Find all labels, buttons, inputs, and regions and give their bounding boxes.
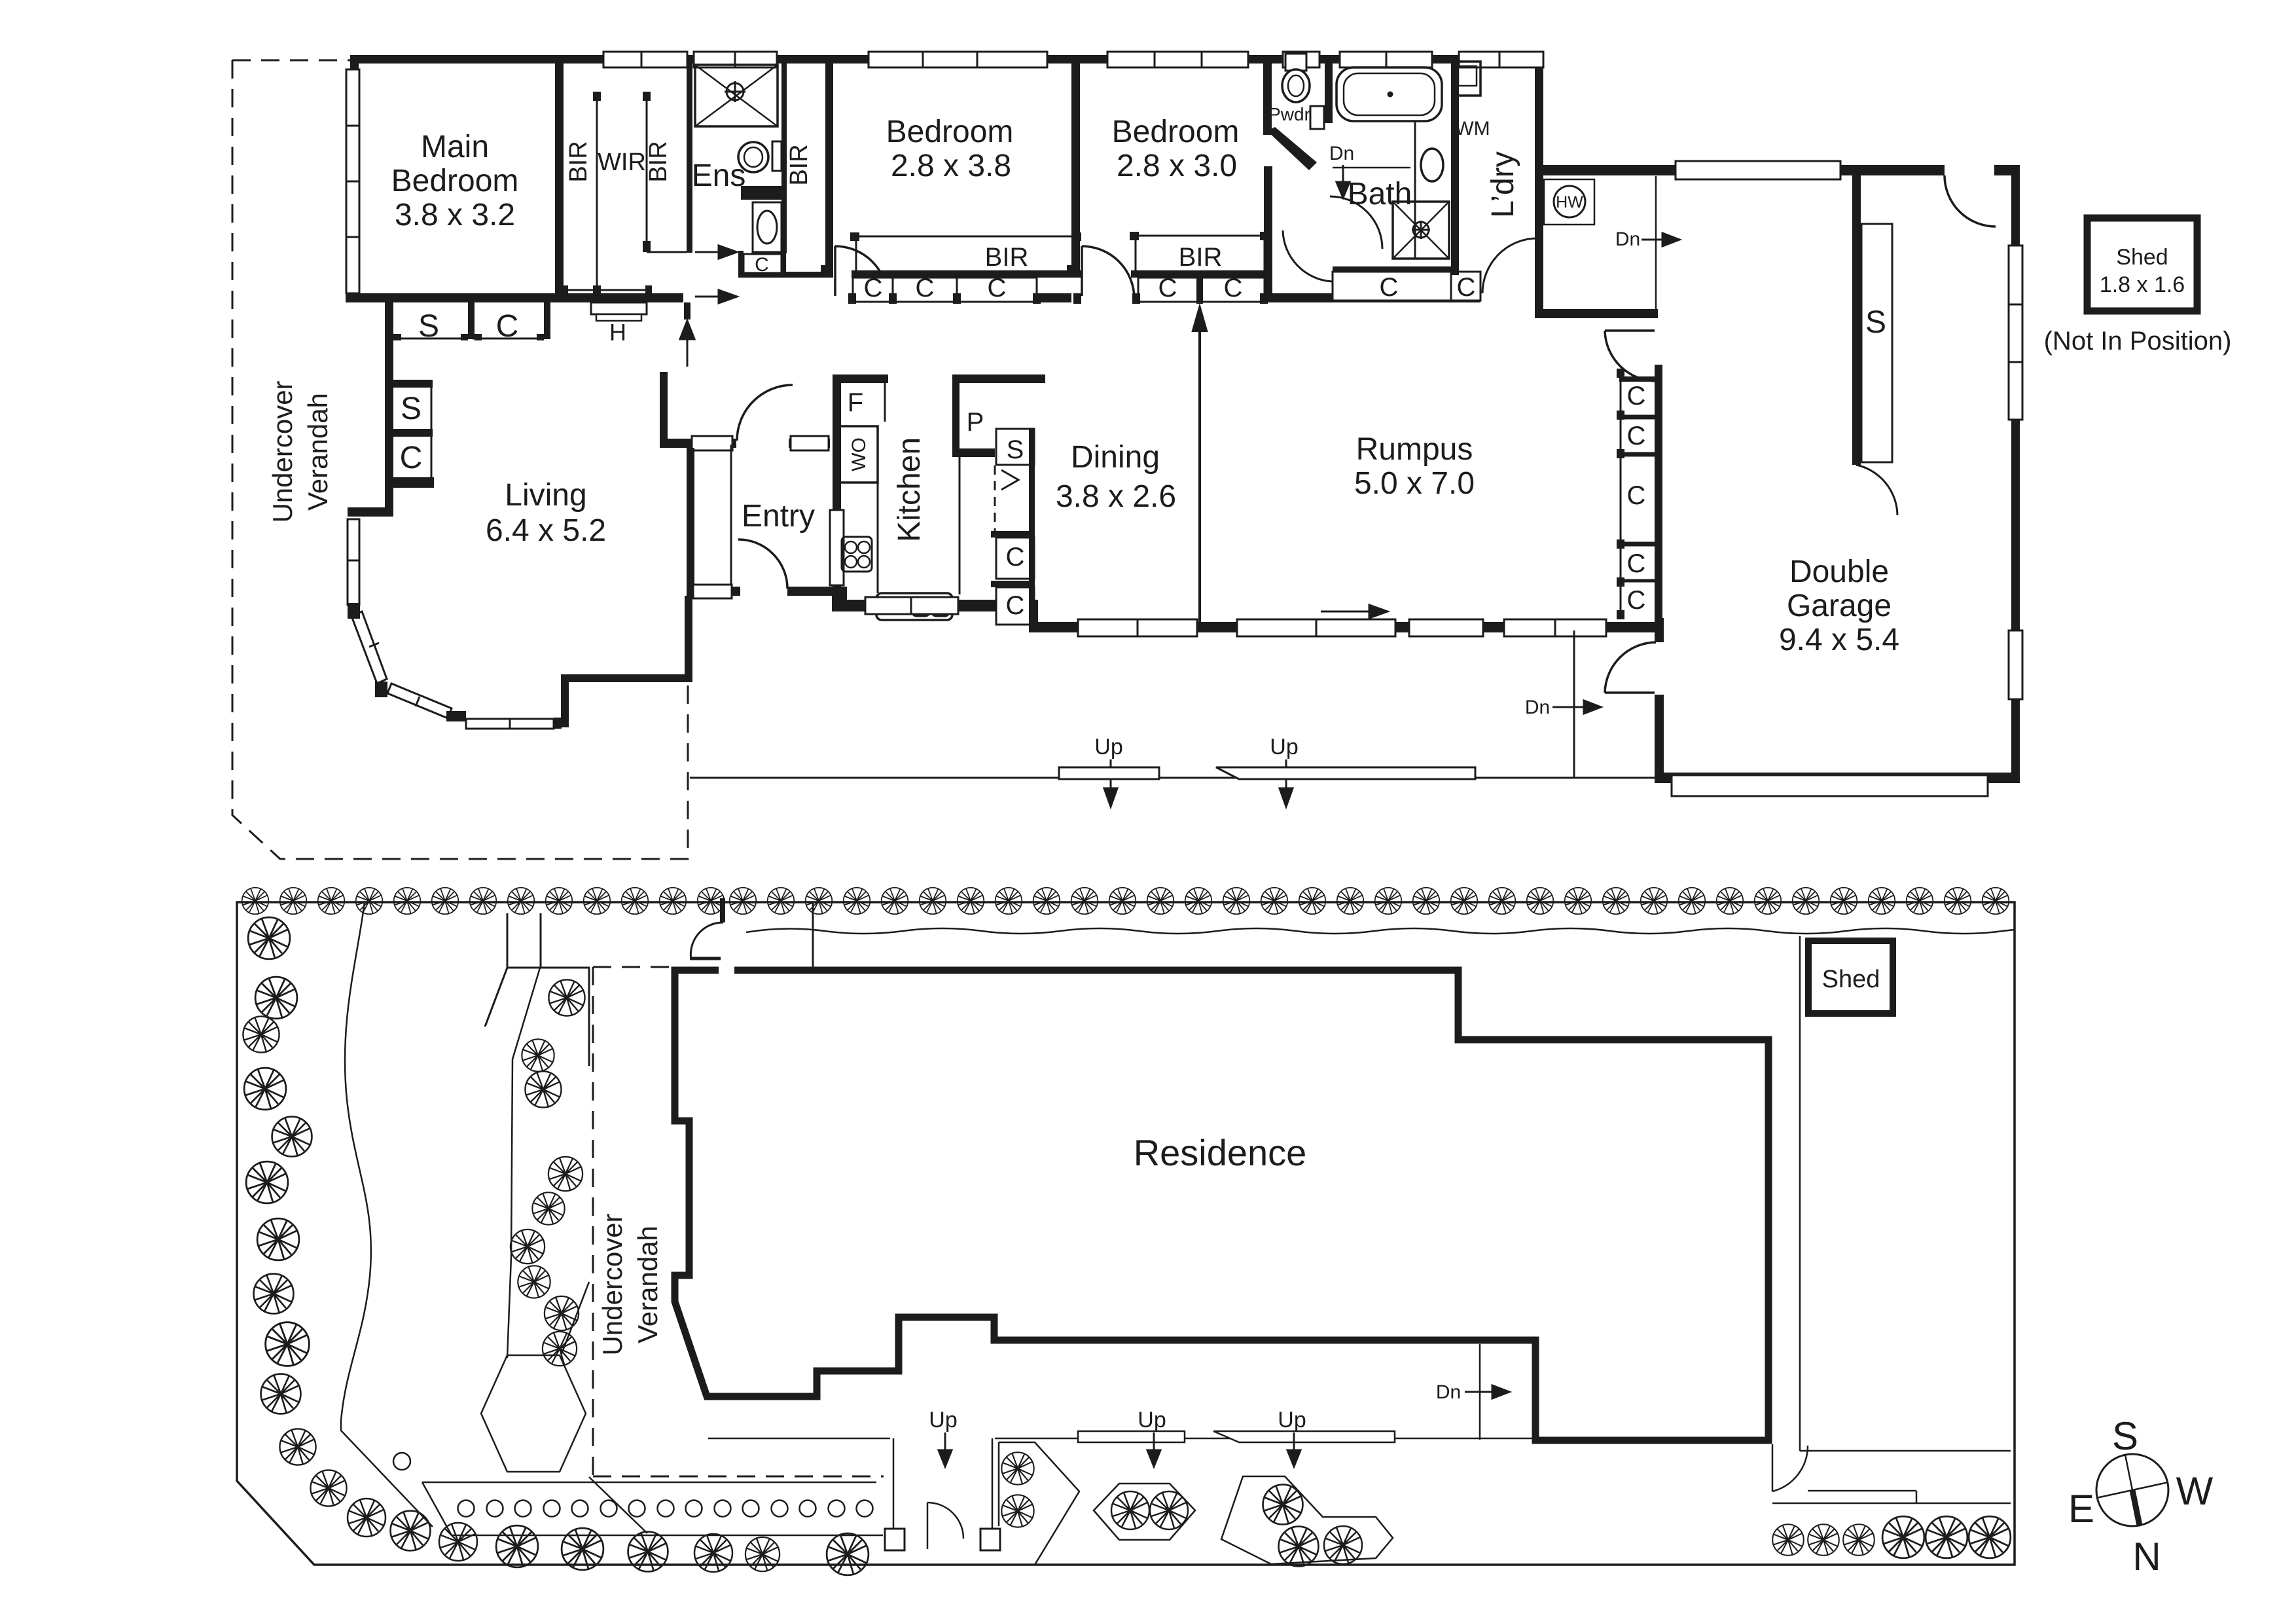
svg-text:C: C	[1627, 481, 1646, 510]
svg-text:BIR: BIR	[785, 144, 813, 185]
svg-text:C: C	[1158, 274, 1177, 302]
svg-text:Entry: Entry	[742, 499, 815, 534]
svg-text:F: F	[848, 388, 863, 417]
svg-text:WIR: WIR	[598, 149, 646, 176]
svg-text:C: C	[1006, 591, 1025, 620]
svg-text:Rumpus: Rumpus	[1356, 432, 1473, 467]
svg-text:Up: Up	[1094, 735, 1122, 759]
svg-text:Dn: Dn	[1436, 1381, 1461, 1403]
svg-text:Main: Main	[421, 130, 489, 164]
svg-text:Pwdr: Pwdr	[1268, 104, 1310, 124]
svg-text:C: C	[755, 254, 769, 276]
svg-text:Double: Double	[1789, 555, 1889, 589]
svg-text:Dn: Dn	[1525, 697, 1550, 718]
svg-text:C: C	[864, 274, 883, 302]
svg-text:WO: WO	[848, 437, 870, 471]
svg-text:S: S	[418, 309, 439, 344]
svg-text:C: C	[1380, 273, 1399, 302]
svg-text:C: C	[1627, 422, 1646, 450]
svg-text:P: P	[967, 408, 984, 437]
svg-text:Shed: Shed	[1822, 966, 1880, 993]
svg-text:C: C	[988, 274, 1007, 302]
svg-text:Shed: Shed	[2116, 245, 2168, 270]
svg-text:3.8 x 3.2: 3.8 x 3.2	[395, 198, 515, 232]
svg-text:H: H	[609, 319, 626, 346]
svg-text:Bedroom: Bedroom	[391, 164, 519, 198]
svg-text:S: S	[401, 392, 422, 426]
svg-text:C: C	[1627, 382, 1646, 410]
svg-text:BIR: BIR	[1179, 243, 1223, 272]
svg-text:W: W	[2176, 1469, 2214, 1513]
svg-text:C: C	[1006, 543, 1025, 572]
svg-text:BIR: BIR	[565, 141, 592, 182]
svg-text:Kitchen: Kitchen	[892, 437, 927, 542]
svg-text:Verandah: Verandah	[632, 1226, 663, 1343]
svg-text:BIR: BIR	[645, 141, 672, 182]
svg-text:1.8 x 1.6: 1.8 x 1.6	[2100, 272, 2185, 297]
svg-text:Up: Up	[1278, 1408, 1306, 1432]
svg-text:S: S	[1865, 305, 1886, 340]
svg-text:Undercover: Undercover	[267, 380, 298, 522]
svg-text:9.4 x 5.4: 9.4 x 5.4	[1779, 623, 1899, 657]
svg-text:N: N	[2132, 1535, 2161, 1578]
svg-text:Dining: Dining	[1071, 440, 1160, 475]
svg-text:C: C	[916, 274, 935, 302]
svg-text:Ens: Ens	[692, 158, 746, 193]
svg-text:BIR: BIR	[985, 243, 1029, 272]
svg-text:C: C	[496, 309, 519, 344]
svg-text:5.0 x 7.0: 5.0 x 7.0	[1354, 466, 1475, 501]
svg-text:2.8 x 3.0: 2.8 x 3.0	[1117, 149, 1237, 183]
svg-text:WM: WM	[1455, 118, 1490, 139]
svg-text:Garage: Garage	[1787, 589, 1892, 623]
svg-text:Up: Up	[1138, 1408, 1166, 1432]
svg-text:C: C	[1224, 274, 1243, 302]
svg-text:Dn: Dn	[1615, 228, 1640, 250]
svg-text:Undercover: Undercover	[597, 1213, 628, 1355]
svg-text:Up: Up	[929, 1408, 957, 1432]
svg-text:S: S	[1007, 435, 1024, 464]
svg-text:Up: Up	[1270, 735, 1298, 759]
svg-text:Bedroom: Bedroom	[886, 115, 1014, 149]
svg-text:C: C	[1627, 586, 1646, 615]
svg-text:E: E	[2068, 1487, 2094, 1531]
svg-text:Living: Living	[505, 478, 586, 513]
svg-text:S: S	[2112, 1414, 2138, 1458]
svg-text:Dn: Dn	[1329, 143, 1354, 164]
svg-text:C: C	[1457, 273, 1476, 302]
svg-text:C: C	[1627, 549, 1646, 578]
svg-text:Residence: Residence	[1134, 1132, 1307, 1173]
svg-text:L’dry: L’dry	[1486, 151, 1520, 217]
svg-text:3.8 x 2.6: 3.8 x 2.6	[1056, 479, 1176, 514]
svg-text:Verandah: Verandah	[302, 393, 333, 511]
svg-text:2.8 x 3.8: 2.8 x 3.8	[891, 149, 1011, 183]
svg-text:C: C	[400, 441, 423, 475]
svg-text:Bedroom: Bedroom	[1112, 115, 1240, 149]
svg-text:HW: HW	[1556, 193, 1583, 211]
svg-text:(Not In Position): (Not In Position)	[2044, 327, 2232, 356]
svg-text:6.4 x 5.2: 6.4 x 5.2	[486, 513, 606, 548]
svg-text:Bath: Bath	[1348, 177, 1412, 211]
